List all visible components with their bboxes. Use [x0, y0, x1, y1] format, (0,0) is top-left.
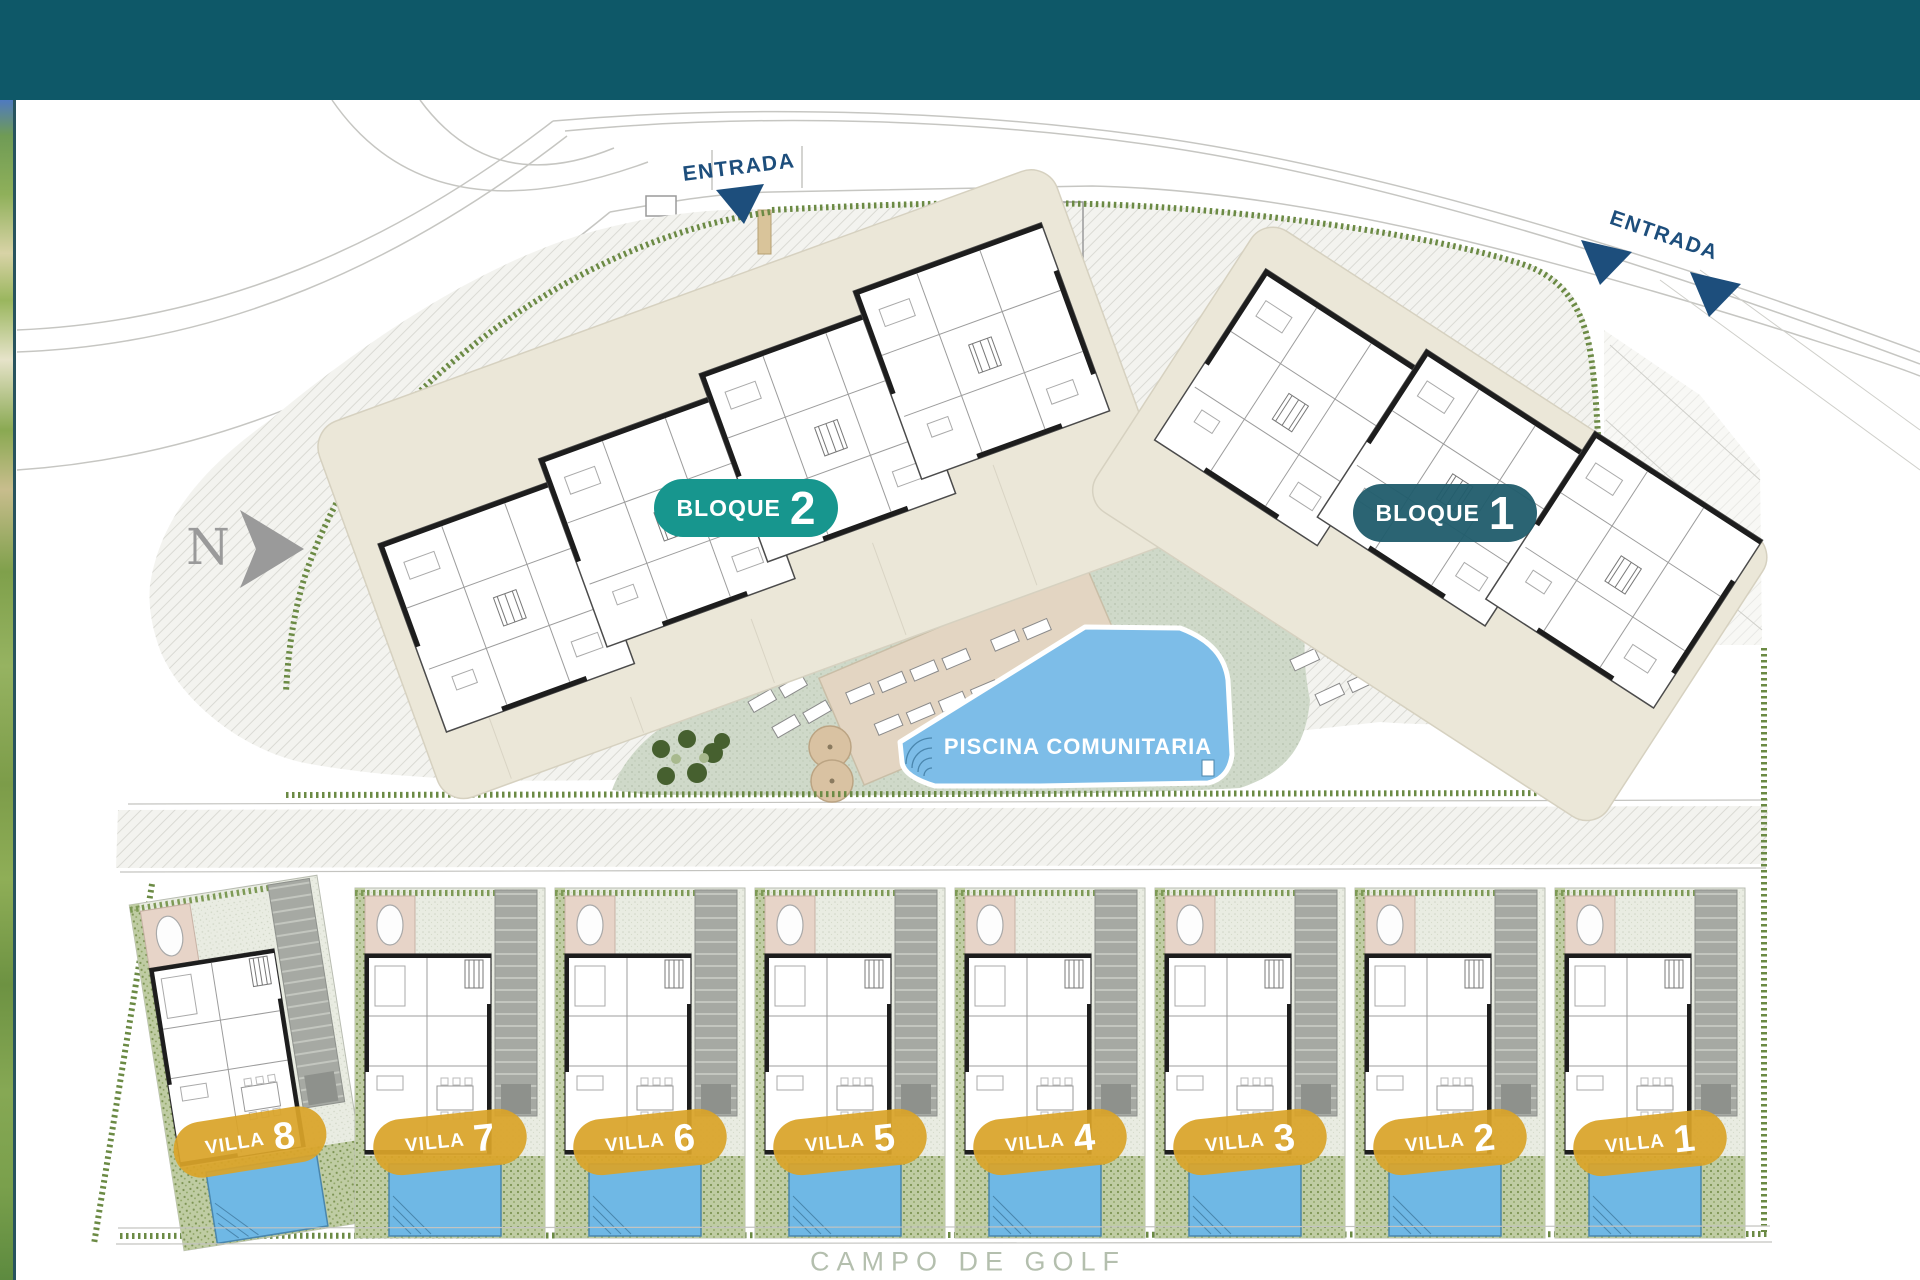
- villa-5-number: 5: [872, 1118, 897, 1158]
- gate-strip: [758, 210, 771, 254]
- villa-2-plan: [1355, 888, 1545, 1238]
- villa-4-number: 4: [1072, 1118, 1097, 1158]
- villa-8-word: VILLA: [204, 1129, 267, 1160]
- entrada-right-arrow-icon-1: [1581, 240, 1632, 285]
- villa-3-word: VILLA: [1204, 1130, 1266, 1158]
- site-plan-page: ENTRADA ENTRADA PISCINA COMUNITARIA CAMP…: [0, 0, 1920, 1280]
- villas-row: [116, 875, 1772, 1250]
- villa-1-word: VILLA: [1604, 1131, 1666, 1159]
- villa-6-plan: [555, 888, 745, 1238]
- villa-1-number: 1: [1672, 1119, 1697, 1159]
- villa-4-plan: [955, 888, 1145, 1238]
- villa-8-number: 8: [271, 1116, 298, 1157]
- villa-2-word: VILLA: [1404, 1130, 1466, 1158]
- site-plan-drawing: [0, 0, 1920, 1280]
- villa-7-word: VILLA: [404, 1130, 466, 1158]
- villa-6-number: 6: [672, 1118, 697, 1158]
- villa-7-number: 7: [472, 1118, 497, 1158]
- photo-strip-border: [13, 100, 16, 1280]
- villa-8-plan: [129, 875, 371, 1250]
- top-banner: [0, 0, 1920, 100]
- villa-5-word: VILLA: [804, 1130, 866, 1158]
- villa-1-plan: [1555, 888, 1745, 1238]
- villa-3-number: 3: [1272, 1118, 1297, 1158]
- villa-7-plan: [355, 888, 545, 1238]
- bloque-2-badge: BLOQUE 2: [654, 479, 838, 537]
- bloque-2-number: 2: [790, 485, 816, 531]
- bloque-1-word: BLOQUE: [1376, 500, 1480, 527]
- campo-de-golf-label: CAMPO DE GOLF: [810, 1247, 1126, 1278]
- bloque-2-word: BLOQUE: [677, 495, 781, 522]
- bloque-1-number: 1: [1489, 490, 1515, 536]
- villa-3-plan: [1155, 888, 1345, 1238]
- villa-4-word: VILLA: [1004, 1130, 1066, 1158]
- villa-6-word: VILLA: [604, 1130, 666, 1158]
- piscina-comunitaria-label: PISCINA COMUNITARIA: [944, 734, 1212, 760]
- bloque-1-badge: BLOQUE 1: [1353, 484, 1537, 542]
- villa-5-plan: [755, 888, 945, 1238]
- golf-photo-strip: [0, 100, 13, 1280]
- north-letter: N: [186, 518, 230, 576]
- villa-2-number: 2: [1472, 1118, 1497, 1158]
